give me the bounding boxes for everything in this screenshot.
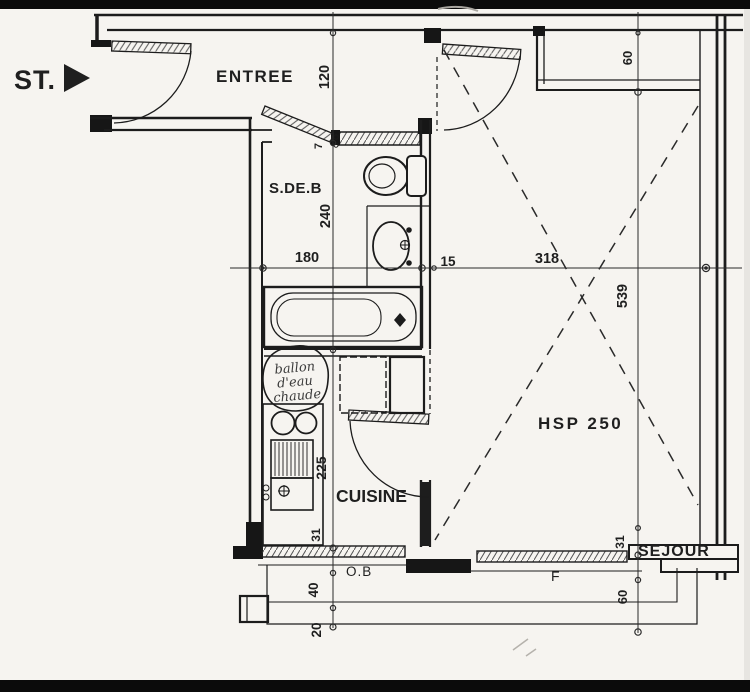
hob-burner bbox=[272, 412, 295, 435]
floorplan-svg: ST. ENTREE S.DE.B CUISINE SEJOUR HSP 250… bbox=[0, 0, 750, 692]
drain-icon bbox=[394, 313, 406, 327]
toilet bbox=[364, 156, 426, 196]
hob-burner bbox=[296, 413, 317, 434]
room-label-entree: ENTREE bbox=[216, 67, 294, 86]
dim-door-jamb: 7 bbox=[313, 143, 325, 149]
note-line-3: chaude bbox=[273, 387, 322, 406]
room-label-cuisine: CUISINE bbox=[336, 486, 407, 506]
bathroom-door bbox=[262, 106, 339, 147]
ceiling-height-label: HSP 250 bbox=[538, 414, 623, 433]
dim-living-width: 318 bbox=[535, 251, 559, 267]
scan-edge-shade bbox=[744, 9, 750, 680]
balcony-outline bbox=[267, 565, 697, 624]
room-label-sdeb: S.DE.B bbox=[269, 180, 322, 197]
window-f-label: F bbox=[551, 568, 560, 584]
dim-kitchen-depth: 225 bbox=[313, 456, 329, 480]
entrance-door bbox=[112, 41, 191, 123]
dim-living-length: 539 bbox=[615, 284, 631, 308]
dim-left-sill: 31 bbox=[309, 528, 323, 542]
scan-smudge-2 bbox=[513, 639, 536, 656]
water-heater-note: ballon d'eau chaude bbox=[270, 359, 322, 406]
dim-partition: 15 bbox=[440, 254, 456, 269]
cooker bbox=[271, 440, 313, 478]
kitchen-door bbox=[348, 410, 429, 497]
dim-closet-depth: 60 bbox=[620, 51, 635, 65]
dim-left-balcony: 40 bbox=[306, 582, 321, 597]
bathtub bbox=[264, 287, 422, 356]
kitchen-sink bbox=[263, 478, 313, 510]
living-room-door bbox=[424, 28, 521, 131]
dimension-lines bbox=[230, 12, 742, 635]
window-ob-label: O.B bbox=[346, 564, 372, 579]
scan-bar-bottom bbox=[0, 680, 750, 692]
dim-bathroom-width: 180 bbox=[295, 250, 319, 266]
entrance-arrow-icon bbox=[64, 64, 90, 92]
dim-bath-depth: 240 bbox=[318, 204, 334, 228]
stairwell-label: ST. bbox=[14, 65, 56, 95]
dim-balcony-edge: 20 bbox=[309, 622, 324, 637]
dim-entry-depth: 120 bbox=[317, 65, 333, 89]
storage-units bbox=[340, 357, 424, 413]
dim-right-balcony: 60 bbox=[615, 590, 630, 604]
room-label-sejour: SEJOUR bbox=[638, 543, 710, 560]
window-f bbox=[477, 551, 627, 562]
dim-right-sill: 31 bbox=[613, 535, 627, 549]
scan-bar-top bbox=[0, 0, 750, 9]
floorplan-scan: ST. ENTREE S.DE.B CUISINE SEJOUR HSP 250… bbox=[0, 0, 750, 692]
